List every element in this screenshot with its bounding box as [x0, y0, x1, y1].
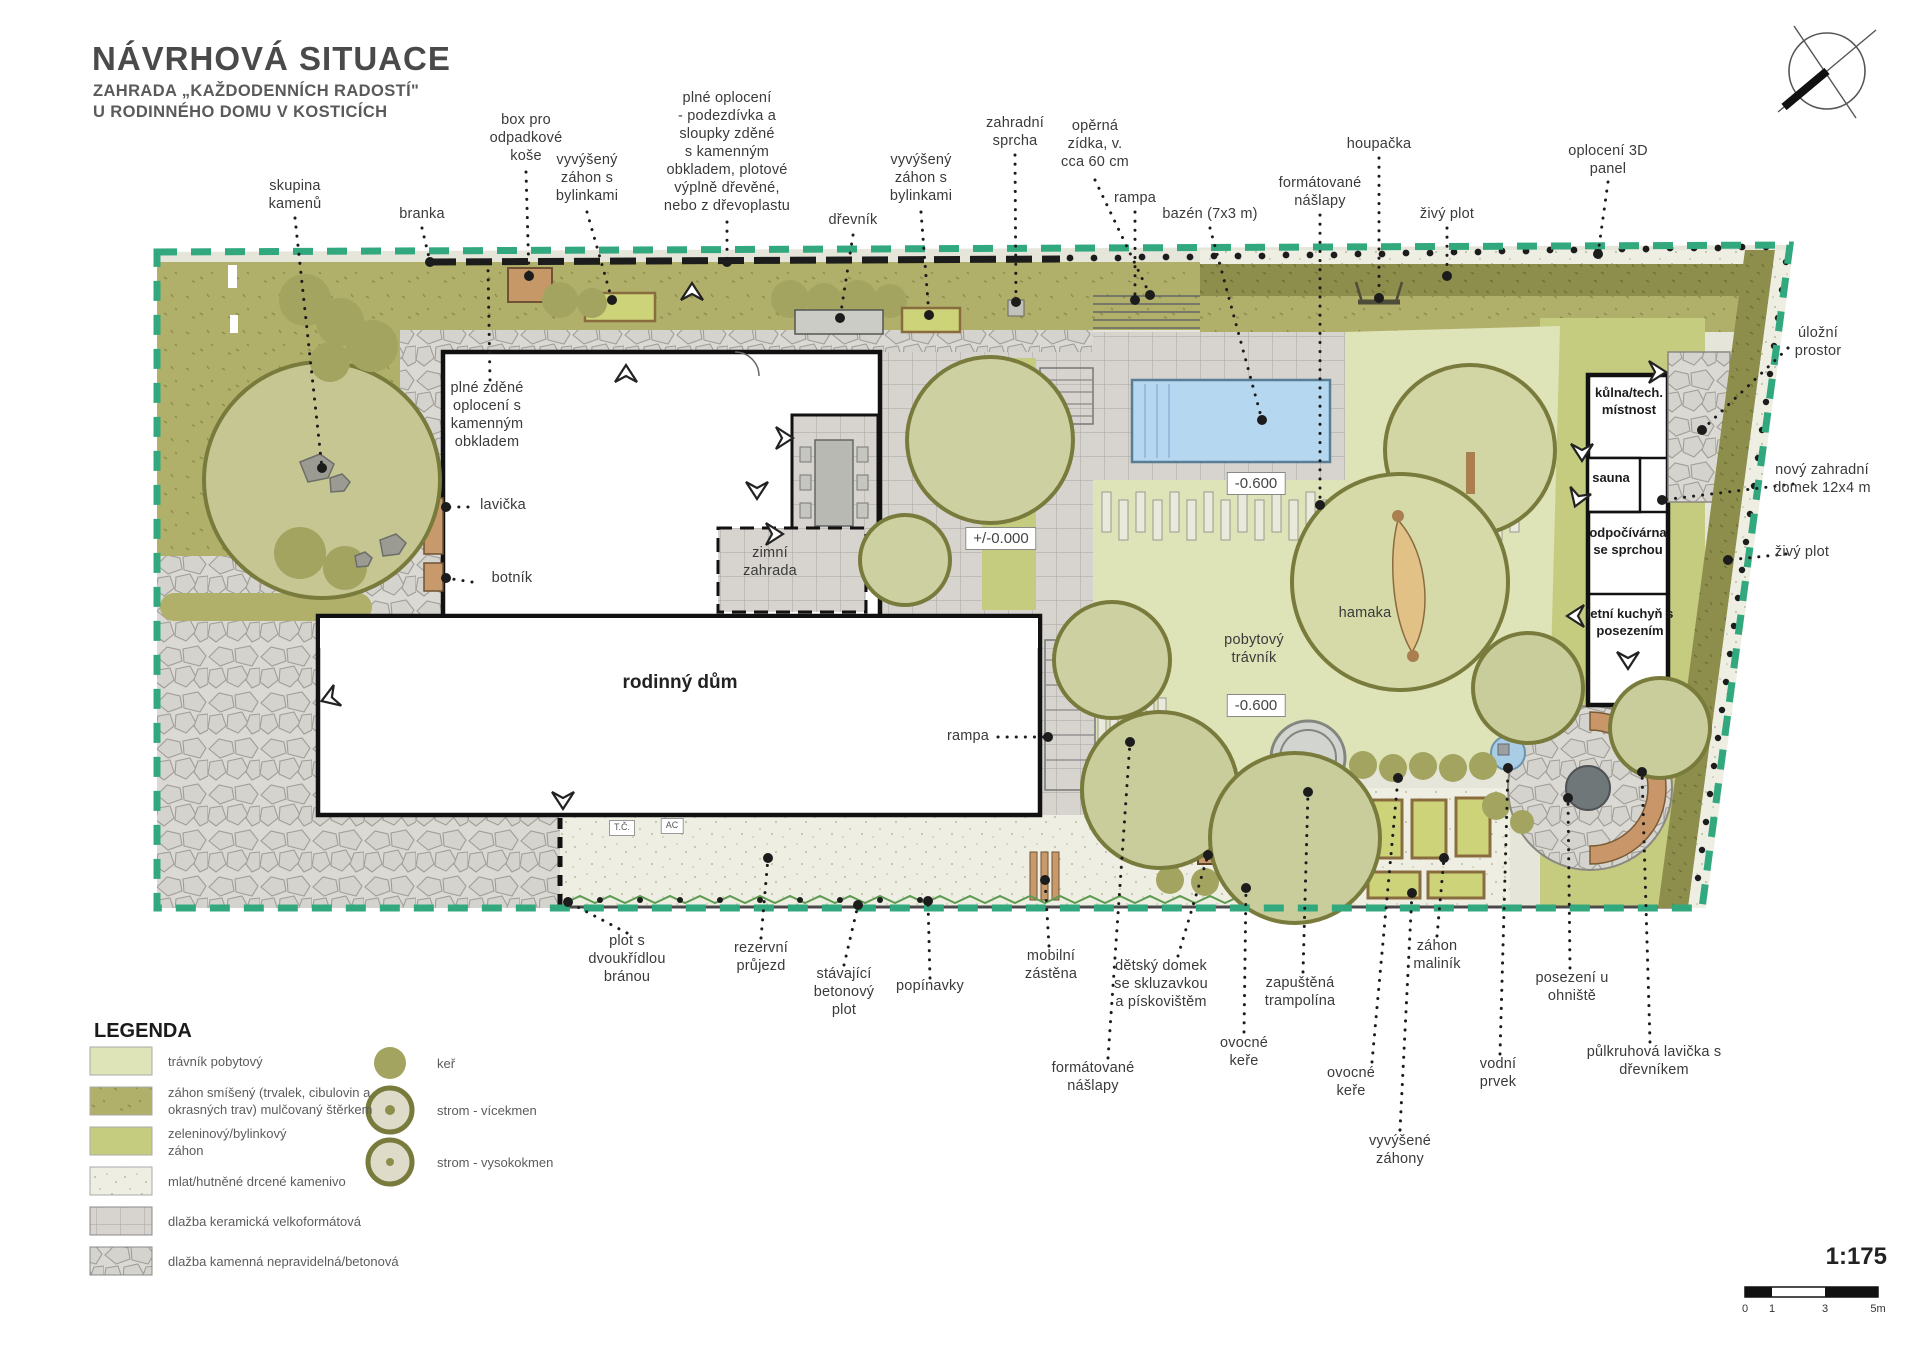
- callout-gate-fence: plot s dvoukřídlou bránou: [588, 933, 665, 987]
- callout-full-fence: plné oplocení - podezdívka a sloupky zdě…: [664, 90, 790, 216]
- tag-tc: T.Č.: [609, 820, 635, 836]
- pool: [1132, 380, 1330, 462]
- hedge-band-top: [1200, 264, 1745, 296]
- callout-herb-bed-1: vyvýšený záhon s bylinkami: [556, 152, 618, 206]
- legend-item-stone-paving: dlažba kamenná nepravidelná/betonová: [168, 1254, 399, 1271]
- legend-heading: LEGENDA: [94, 1020, 192, 1043]
- callout-stone-group: skupina kamenů: [269, 178, 322, 214]
- callout-new-garden-house: nový zahradní domek 12x4 m: [1773, 462, 1871, 498]
- room-rest-shower: odpočívárna se sprchou: [1589, 525, 1666, 559]
- callout-storage-space: úložní prostor: [1795, 325, 1842, 361]
- callout-gate: branka: [399, 206, 445, 224]
- room-shed-tech: kůlna/tech. místnost: [1595, 385, 1663, 419]
- level-label-minus600-a: -0.600: [1227, 472, 1286, 495]
- sheet-title: NÁVRHOVÁ SITUACE: [92, 40, 451, 78]
- callout-woodshed: dřevník: [829, 212, 878, 230]
- callout-climbing-plants: popínavky: [896, 978, 964, 996]
- callout-trampoline: zapuštěná trampolína: [1265, 975, 1336, 1011]
- callout-pool: bazén (7x3 m): [1162, 206, 1257, 224]
- label-bench: lavička: [480, 497, 526, 515]
- callout-existing-fence: stávající betonový plot: [814, 966, 874, 1020]
- north-compass-icon: [1778, 26, 1876, 118]
- scale-ratio: 1:175: [1826, 1243, 1887, 1271]
- sheet-subtitle-2: U RODINNÉHO DOMU V KOSTICÍCH: [93, 103, 387, 122]
- callout-fruit-shrubs-a: ovocné keře: [1220, 1035, 1268, 1071]
- raised-vegetable-beds: [1368, 798, 1490, 898]
- legend-item-standard-tree: strom - vysokokmen: [437, 1155, 553, 1172]
- label-ramp-inner: rampa: [947, 728, 989, 746]
- legend-item-vegetable-bed: zeleninový/bylinkový záhon: [168, 1126, 287, 1160]
- callout-kids-house: dětský domek se skluzavkou a pískovištěm: [1114, 958, 1208, 1012]
- garden-plan-sheet: NÁVRHOVÁ SITUACE ZAHRADA „KAŽDODENNÍCH R…: [0, 0, 1920, 1357]
- label-masonry-fence: plné zděné oplocení s kamenným obkladem: [451, 380, 524, 452]
- label-resident-lawn: pobytový trávník: [1224, 632, 1284, 668]
- label-hammock: hamaka: [1339, 605, 1392, 623]
- callout-ramp-top: rampa: [1114, 190, 1156, 208]
- scale-bar: [1745, 1287, 1878, 1297]
- legend-item-gravel: mlat/hutněné drcené kamenivo: [168, 1174, 346, 1191]
- level-label-zero: +/-0.000: [965, 527, 1036, 550]
- legend-item-multistem-tree: strom - vícekmen: [437, 1103, 537, 1120]
- callout-herb-bed-2: vyvýšený záhon s bylinkami: [890, 152, 952, 206]
- callout-mobile-screen: mobilní zástěna: [1025, 948, 1077, 984]
- gravel-reserve-drive: [560, 815, 1160, 908]
- callout-water-feature: vodní prvek: [1480, 1056, 1516, 1092]
- callout-hedge-right: živý plot: [1775, 544, 1829, 562]
- scale-tick-0: 0: [1742, 1303, 1748, 1315]
- tree-trunk: [1466, 452, 1475, 494]
- callout-hedge-top: živý plot: [1420, 206, 1474, 224]
- legend-item-shrub: keř: [437, 1056, 455, 1073]
- legend-swatches: [90, 1047, 412, 1275]
- scale-tick-1: 1: [1769, 1303, 1775, 1315]
- road-marking: [230, 315, 238, 333]
- callout-garden-shower: zahradní sprcha: [986, 115, 1044, 151]
- callout-3d-panel-fence: oplocení 3D panel: [1568, 143, 1648, 179]
- callout-semicircular-bench: půlkruhová lavička s dřevníkem: [1587, 1044, 1722, 1080]
- road-marking: [228, 265, 237, 288]
- callout-raspberry-bed: záhon maliník: [1413, 938, 1460, 974]
- callout-fruit-shrubs-b: ovocné keře: [1327, 1065, 1375, 1101]
- callout-waste-box: box pro odpadkové koše: [490, 112, 563, 166]
- callout-raised-beds: vyvýšené záhony: [1369, 1133, 1431, 1169]
- scale-tick-5m: 5m: [1870, 1303, 1885, 1315]
- label-winter-garden: zimní zahrada: [743, 545, 797, 581]
- callout-stepping-stones-bottom: formátované nášlapy: [1052, 1060, 1135, 1096]
- callout-fire-pit-seating: posezení u ohniště: [1536, 970, 1609, 1006]
- level-label-minus600-b: -0.600: [1227, 694, 1286, 717]
- callout-retaining-wall: opěrná zídka, v. cca 60 cm: [1061, 118, 1129, 172]
- label-shoe-cabinet: botník: [492, 570, 533, 588]
- scale-tick-3: 3: [1822, 1303, 1828, 1315]
- sheet-subtitle-1: ZAHRADA „KAŽDODENNÍCH RADOSTÍ": [93, 82, 419, 101]
- callout-swing: houpačka: [1347, 136, 1412, 154]
- room-summer-kitchen: letní kuchyň s posezením: [1587, 606, 1674, 640]
- callout-stepping-stones-top: formátované nášlapy: [1279, 175, 1362, 211]
- legend-item-mixed-bed: záhon smíšený (trvalek, cibulovin a okra…: [168, 1085, 372, 1119]
- callout-reserve-passage: rezervní průjezd: [734, 940, 788, 976]
- legend-item-ceramic-paving: dlažba keramická velkoformátová: [168, 1214, 361, 1231]
- tag-ac: AC: [661, 818, 684, 834]
- room-sauna: sauna: [1592, 470, 1630, 487]
- legend-item-lawn: trávník pobytový: [168, 1054, 263, 1071]
- label-family-house: rodinný dům: [622, 672, 737, 694]
